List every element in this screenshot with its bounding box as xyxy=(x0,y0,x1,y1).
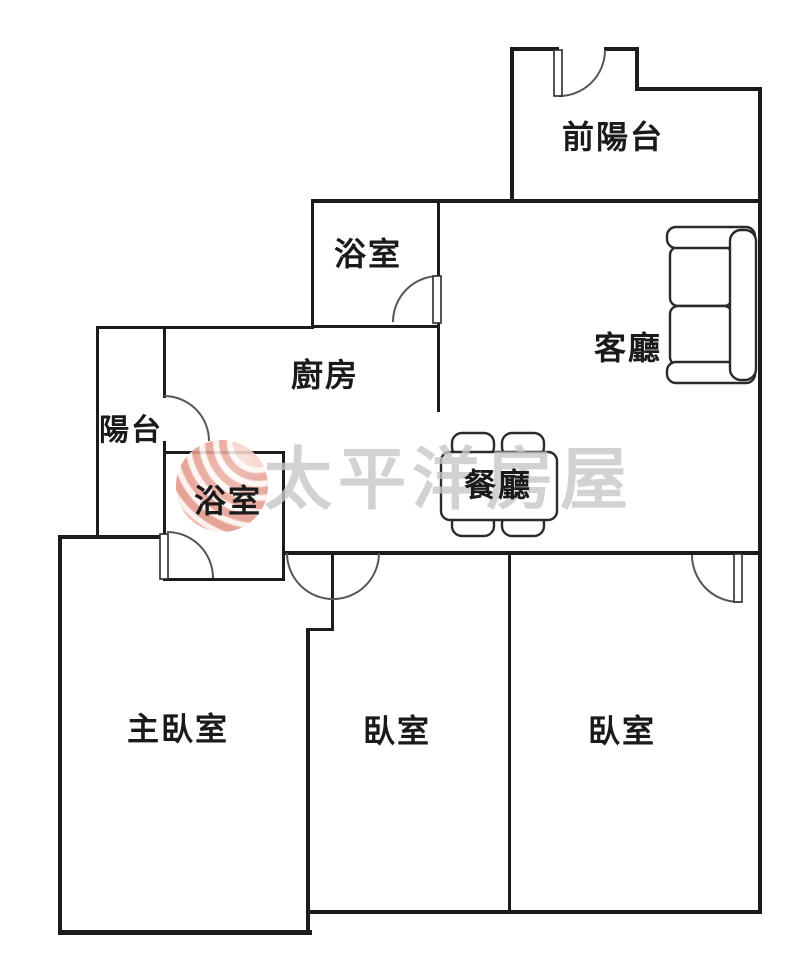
wall-kitchen-balcony-top xyxy=(96,326,314,329)
wall-top-main xyxy=(311,199,762,203)
room-label-front-balcony: 前陽台 xyxy=(562,121,664,153)
room-label-kitchen: 廚房 xyxy=(291,359,359,391)
wall-bedroom-jog-vertical xyxy=(331,551,334,630)
door-arc-front-balcony xyxy=(559,50,605,96)
wall-front-balcony-upper-right xyxy=(635,87,762,91)
wall-kitchen-living-divider-b xyxy=(437,322,440,412)
watermark-brand-text: 太平洋房屋 xyxy=(264,444,634,519)
door-leaf-bathroom-lower xyxy=(160,534,168,579)
wall-master-middle-divider xyxy=(306,628,310,933)
room-label-bedroom-right: 臥室 xyxy=(588,715,656,747)
wall-front-balcony-top-left xyxy=(510,47,559,51)
room-label-bathroom-lower: 浴室 xyxy=(194,485,262,517)
sofa-cushion xyxy=(670,306,732,365)
wall-front-balcony-left xyxy=(510,47,514,203)
wall-central-horizontal xyxy=(282,551,762,555)
room-label-bedroom-middle: 臥室 xyxy=(363,715,431,747)
wall-balcony-kitchen-a xyxy=(163,326,166,398)
wall-bedroom-jog-horizontal xyxy=(306,628,334,631)
door-leaf-bedroom-right xyxy=(734,554,742,602)
wall-front-balcony-top-right xyxy=(604,47,639,51)
room-label-bathroom-upper: 浴室 xyxy=(334,238,402,270)
sofa-cushion xyxy=(670,247,732,306)
room-label-master-bedroom: 主臥室 xyxy=(127,713,229,745)
wall-bathroom-upper-bottom xyxy=(311,325,439,328)
room-label-balcony: 陽台 xyxy=(99,416,163,446)
door-arc-bathroom-upper xyxy=(393,276,439,322)
door-leaf-front-balcony xyxy=(554,50,562,96)
wall-master-top xyxy=(58,535,165,539)
door-arc-bedroom-right xyxy=(692,555,739,602)
wall-middle-right-divider xyxy=(508,553,511,912)
wall-balcony-kitchen-b xyxy=(163,441,166,537)
sofa-backrest xyxy=(730,230,756,380)
wall-bathroom-upper-left xyxy=(311,199,314,328)
sofa-icon xyxy=(667,227,756,383)
door-leaf-bathroom-upper xyxy=(433,276,441,323)
wall-bottom-bedrooms xyxy=(308,910,762,914)
wall-kitchen-living-divider-a xyxy=(437,203,440,278)
wall-right-exterior xyxy=(758,87,762,914)
door-arc-kitchen-balcony xyxy=(164,396,209,441)
wall-front-balcony-step xyxy=(635,47,639,91)
wall-bathroom-lower-bottom xyxy=(163,578,285,581)
wall-master-left xyxy=(58,535,62,935)
room-label-dining-room: 餐廳 xyxy=(464,469,532,501)
room-label-living-room: 客廳 xyxy=(594,332,662,364)
floor-plan-page: 太平洋房屋 前陽台 浴室 客廳 廚房 陽台 浴室 餐廳 主臥室 臥室 臥室 xyxy=(0,0,800,962)
door-arc-bathroom-lower xyxy=(167,532,213,578)
wall-bottom-master xyxy=(58,930,312,935)
